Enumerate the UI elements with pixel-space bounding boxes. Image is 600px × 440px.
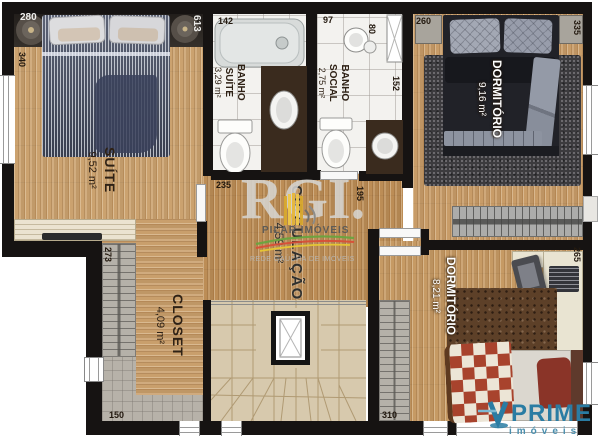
svg-text:PRIME: PRIME — [511, 400, 592, 427]
svg-text:imóveis: imóveis — [509, 426, 581, 437]
svg-text:REDE GAÚCHA DE IMÓVEIS: REDE GAÚCHA DE IMÓVEIS — [250, 254, 355, 263]
svg-text:PILAR IMÓVEIS: PILAR IMÓVEIS — [262, 223, 349, 236]
